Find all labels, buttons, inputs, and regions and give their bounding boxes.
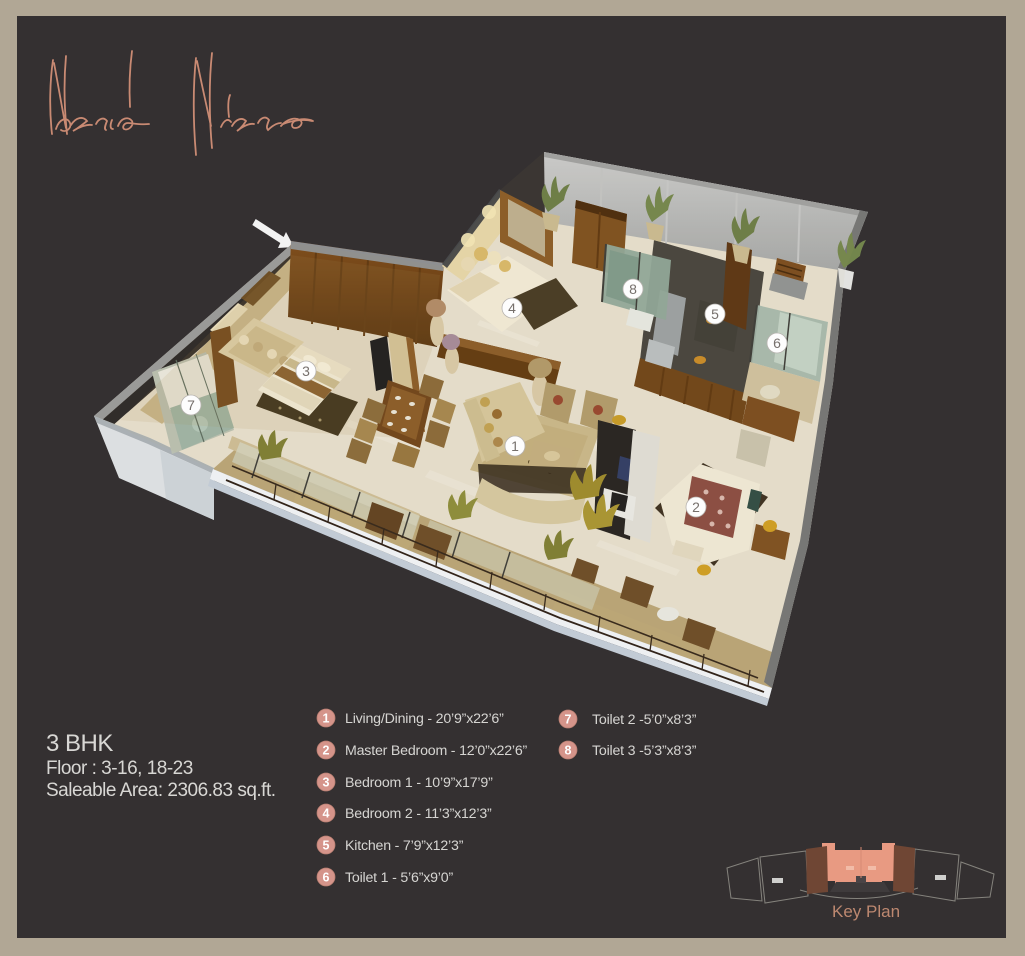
svg-text:Toilet 2 -5’0”x8’3”: Toilet 2 -5’0”x8’3” — [592, 712, 697, 728]
svg-text:Master Bedroom - 12’0”x22’6”: Master Bedroom - 12’0”x22’6” — [345, 743, 528, 759]
svg-text:Kitchen - 7’9”x12’3”: Kitchen - 7’9”x12’3” — [345, 838, 464, 854]
svg-text:Toilet 3 -5’3”x8’3”: Toilet 3 -5’3”x8’3” — [592, 743, 697, 759]
svg-text:8: 8 — [629, 281, 637, 297]
svg-text:Saleable Area: 2306.83 sq.ft.: Saleable Area: 2306.83 sq.ft. — [46, 780, 276, 801]
svg-text:Key Plan: Key Plan — [832, 902, 900, 921]
svg-text:6: 6 — [323, 871, 330, 885]
svg-text:2: 2 — [323, 744, 330, 758]
svg-text:3 BHK: 3 BHK — [46, 730, 113, 757]
svg-text:3: 3 — [323, 776, 330, 790]
svg-text:3: 3 — [302, 363, 310, 379]
svg-text:1: 1 — [323, 712, 330, 726]
svg-text:4: 4 — [323, 807, 330, 821]
svg-text:4: 4 — [508, 300, 516, 316]
svg-text:2: 2 — [692, 499, 700, 515]
svg-text:7: 7 — [187, 397, 195, 413]
svg-text:Floor : 3-16, 18-23: Floor : 3-16, 18-23 — [46, 758, 193, 779]
svg-text:7: 7 — [565, 713, 572, 727]
svg-text:Bedroom 1 - 10’9”x17’9”: Bedroom 1 - 10’9”x17’9” — [345, 775, 493, 791]
svg-text:5: 5 — [711, 306, 719, 322]
svg-text:Bedroom 2 - 11’3”x12’3”: Bedroom 2 - 11’3”x12’3” — [345, 806, 492, 822]
svg-text:5: 5 — [323, 839, 330, 853]
svg-text:8: 8 — [565, 744, 572, 758]
svg-text:Toilet 1 - 5’6”x9’0”: Toilet 1 - 5’6”x9’0” — [345, 870, 453, 886]
svg-text:1: 1 — [511, 438, 519, 454]
svg-text:6: 6 — [773, 335, 781, 351]
svg-text:Living/Dining - 20’9”x22’6”: Living/Dining - 20’9”x22’6” — [345, 711, 504, 727]
